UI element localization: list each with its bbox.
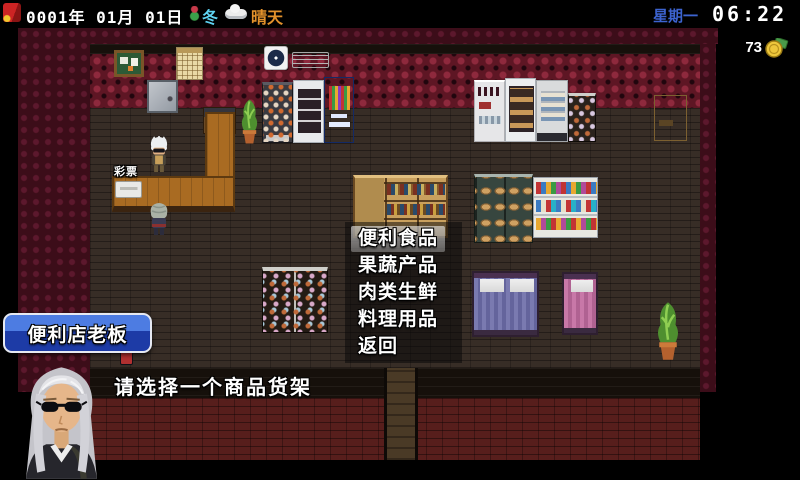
cloud-icon: [225, 9, 247, 19]
hud-season: 冬: [202, 4, 218, 28]
winter-plant-icon: [189, 6, 200, 21]
blue-vending-machine: [324, 77, 354, 143]
bread-rack[interactable]: [474, 174, 533, 243]
outer-wall-top: [75, 28, 718, 44]
hud-date: 0001年 01月 01日: [26, 4, 183, 28]
player-sprite[interactable]: [148, 202, 170, 236]
hud-bar: 0001年 01月 01日 冬 晴天 星期一 06:22: [0, 0, 800, 28]
hud-weekday: 星期一: [653, 5, 698, 26]
gold-coin-icon: [765, 38, 789, 58]
blue-bed: [472, 271, 539, 337]
menu-item-cooking-supplies[interactable]: 料理用品: [351, 307, 445, 333]
wine-shelf[interactable]: [474, 80, 505, 142]
menu-item-convenience-food[interactable]: 便利食品: [351, 226, 445, 252]
snack-vending-machine: [262, 82, 293, 143]
drink-fridge: [293, 80, 324, 143]
shopkeeper-portrait: [22, 362, 101, 480]
menu-item-return[interactable]: 返回: [351, 334, 405, 360]
game-screen: 彩票 00: [0, 0, 800, 480]
speaker-name: 便利店老板: [27, 320, 127, 347]
speaker-name-box: 便利店老板: [3, 313, 152, 353]
menu-flag-icon[interactable]: [3, 3, 21, 22]
food-fridge[interactable]: [505, 78, 536, 142]
bulletin-board: [114, 50, 144, 77]
dark-shelf-right[interactable]: [568, 93, 596, 142]
pink-bed: [562, 272, 598, 335]
dialog-text: 请选择一个商品货架: [114, 371, 312, 400]
metal-door: [147, 80, 178, 113]
calendar: [176, 47, 203, 80]
wall-clock: [264, 46, 288, 70]
lottery-label: 彩票: [114, 163, 138, 179]
cardboard-box: [654, 95, 687, 141]
menu-item-fruits-vegetables[interactable]: 果蔬产品: [351, 253, 445, 279]
display-case[interactable]: [536, 80, 568, 142]
shopkeeper-sprite[interactable]: [148, 136, 170, 173]
shop-menu-window: 便利食品 果蔬产品 肉类生鲜 料理用品 返回: [345, 222, 462, 363]
entrance-path: [384, 368, 418, 460]
hud-money: 73: [728, 39, 762, 56]
hud-time: 06:22: [712, 2, 787, 26]
dark-shelf-left[interactable]: [262, 267, 328, 333]
potted-plant-top: [238, 97, 261, 146]
ac-unit: [292, 52, 329, 68]
potted-plant-bottom: [653, 297, 683, 365]
hud-weather: 晴天: [251, 4, 283, 28]
lottery-printer: [115, 181, 142, 198]
product-shelf[interactable]: [533, 177, 598, 238]
menu-item-fresh-meat[interactable]: 肉类生鲜: [351, 280, 445, 306]
